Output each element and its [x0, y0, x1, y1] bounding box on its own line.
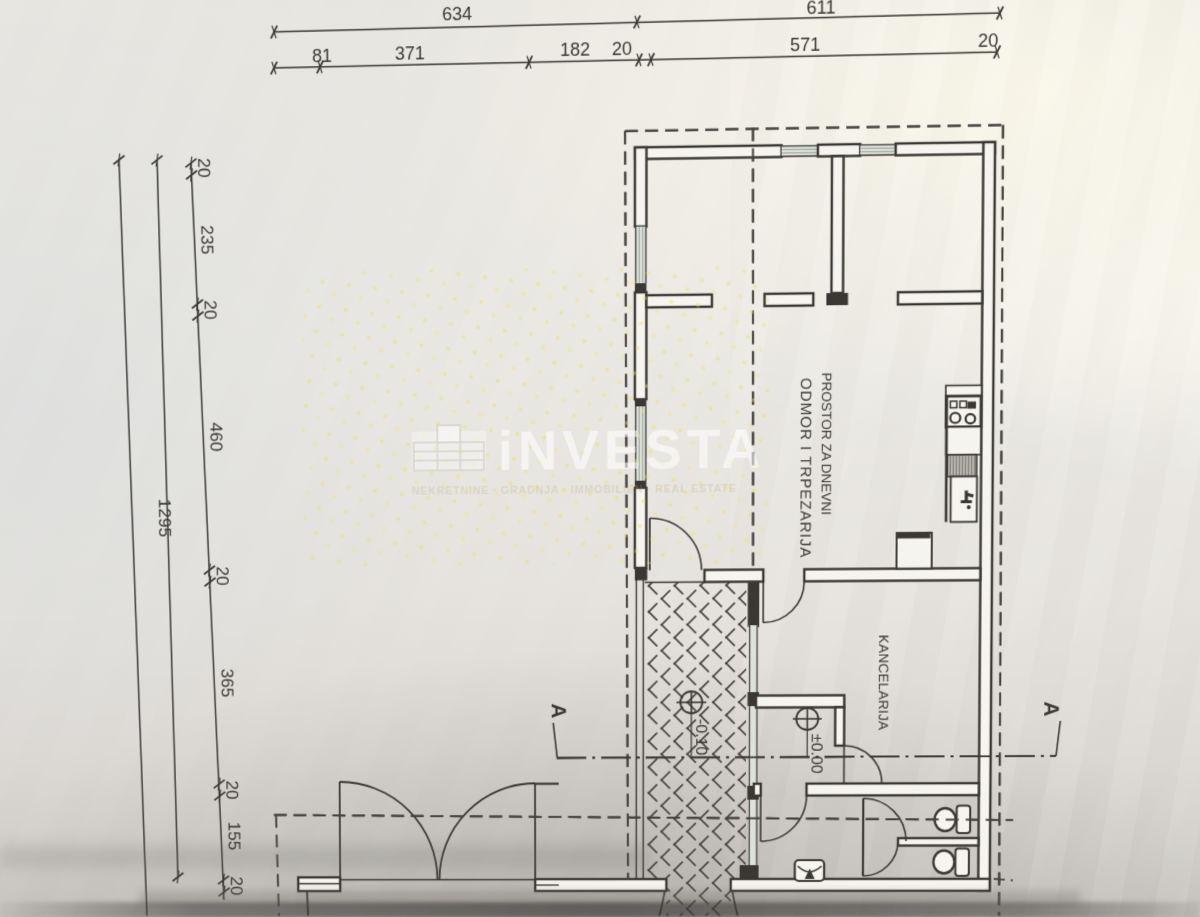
svg-text:20: 20 [222, 780, 242, 799]
svg-text:81: 81 [312, 45, 332, 66]
svg-text:20: 20 [194, 158, 214, 178]
svg-text:PROSTOR ZA DNEVNI: PROSTOR ZA DNEVNI [819, 372, 835, 515]
svg-text:±0.00: ±0.00 [808, 734, 825, 774]
svg-text:-0.10: -0.10 [692, 719, 709, 755]
svg-text:iNVESTA: iNVESTA [498, 417, 766, 482]
svg-text:235: 235 [197, 225, 217, 255]
svg-text:20: 20 [612, 39, 632, 60]
svg-text:460: 460 [206, 422, 226, 451]
svg-text:1295: 1295 [155, 499, 175, 538]
svg-text:571: 571 [790, 35, 820, 56]
svg-text:ODMOR I TRPEZARIJA: ODMOR I TRPEZARIJA [796, 378, 814, 559]
svg-text:A: A [547, 703, 570, 718]
svg-text:20: 20 [213, 566, 233, 585]
svg-text:634: 634 [442, 3, 472, 24]
svg-text:182: 182 [560, 40, 590, 61]
svg-text:371: 371 [395, 43, 425, 64]
svg-text:20: 20 [201, 300, 221, 320]
svg-text:KANCELARIJA: KANCELARIJA [876, 635, 892, 731]
svg-text:611: 611 [807, 0, 836, 18]
svg-text:365: 365 [218, 668, 238, 697]
svg-text:20: 20 [978, 31, 999, 52]
svg-text:A: A [1039, 701, 1062, 716]
